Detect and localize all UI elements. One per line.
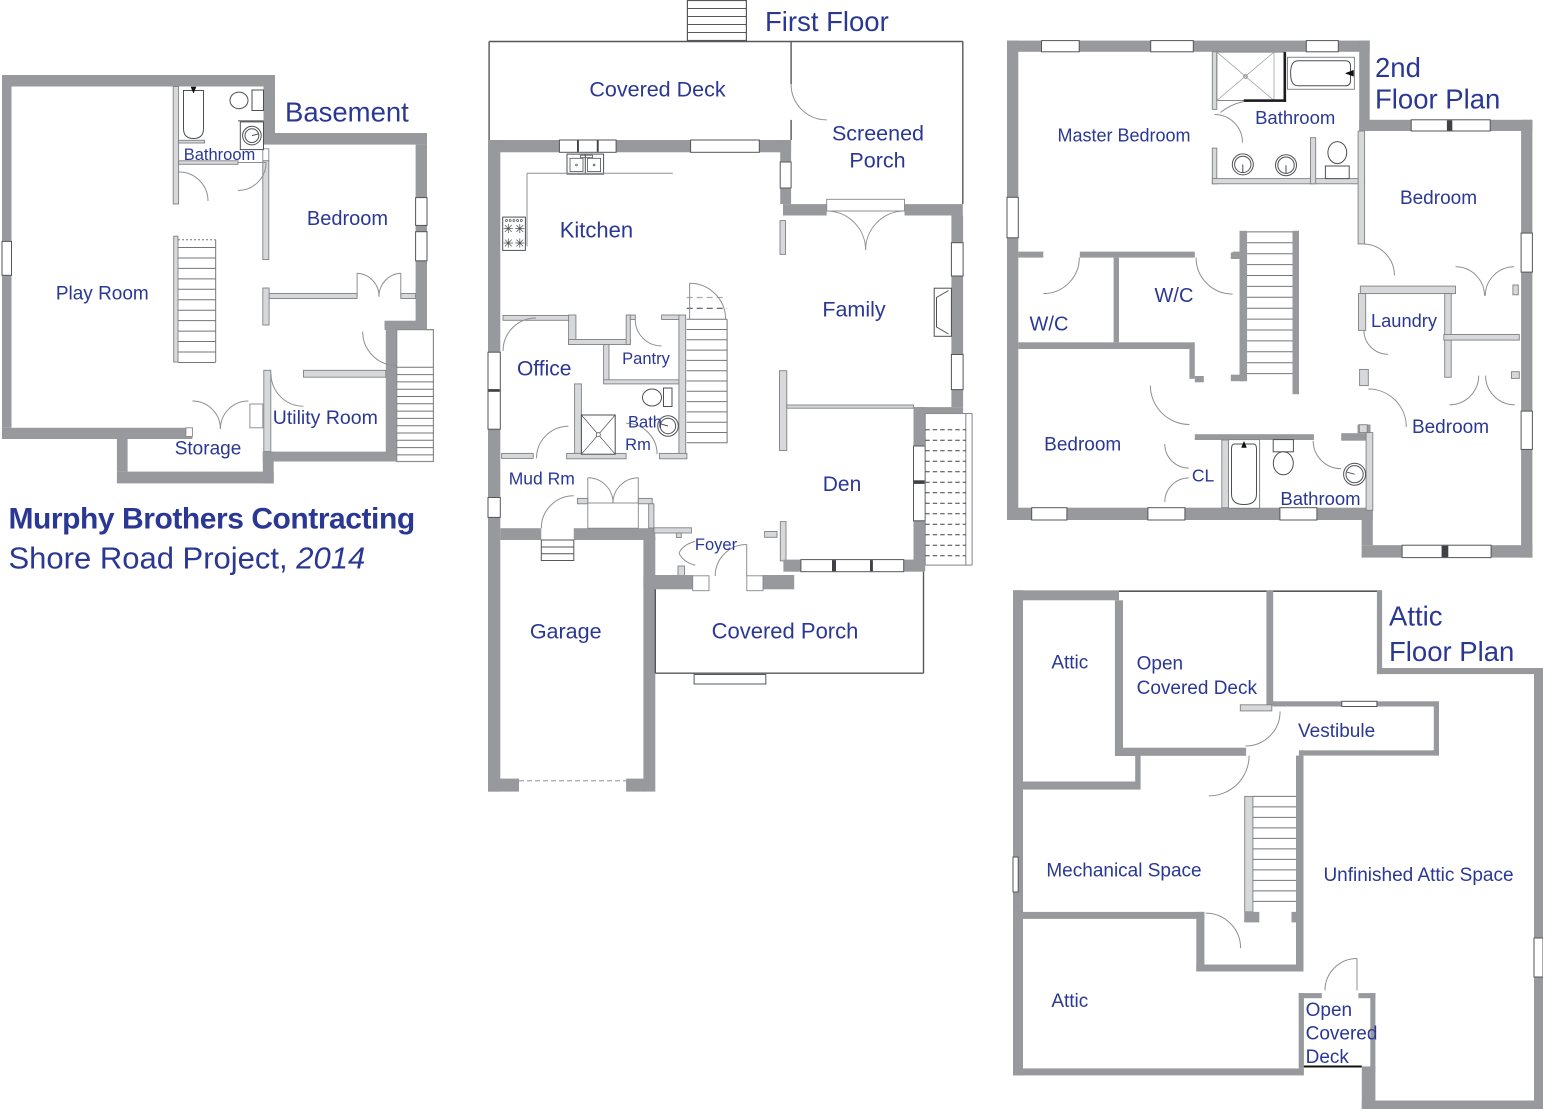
svg-text:Bathroom: Bathroom [184,146,256,164]
svg-text:Mud Rm: Mud Rm [509,469,575,489]
svg-text:Bathroom: Bathroom [1255,107,1335,128]
svg-text:Play Room: Play Room [56,283,149,304]
svg-text:Pantry: Pantry [622,350,670,368]
svg-text:Bedroom: Bedroom [307,208,388,230]
svg-text:Laundry: Laundry [1371,310,1438,331]
svg-text:Shore Road Project, 2014: Shore Road Project, 2014 [9,541,366,576]
svg-text:Attic: Attic [1051,653,1088,674]
svg-text:Bedroom: Bedroom [1400,188,1477,209]
svg-text:Basement: Basement [285,97,409,128]
svg-text:Covered Porch: Covered Porch [712,618,859,643]
svg-text:Bedroom: Bedroom [1412,417,1489,438]
svg-text:CL: CL [1192,466,1215,486]
svg-text:Storage: Storage [175,438,242,459]
svg-text:Bedroom: Bedroom [1044,435,1121,456]
svg-text:Unfinished Attic Space: Unfinished Attic Space [1323,865,1513,886]
svg-text:W/C: W/C [1155,285,1194,307]
svg-text:Murphy Brothers Contracting: Murphy Brothers Contracting [9,503,415,536]
svg-text:Utility Room: Utility Room [273,407,378,429]
svg-text:Covered Deck: Covered Deck [1137,678,1258,699]
svg-text:2nd: 2nd [1375,52,1421,83]
svg-text:Kitchen: Kitchen [560,217,633,242]
svg-text:Foyer: Foyer [695,536,738,554]
svg-text:Attic: Attic [1051,991,1088,1012]
svg-text:Porch: Porch [849,149,905,173]
svg-text:Screened: Screened [832,122,924,146]
svg-text:Bath: Bath [628,414,662,432]
svg-text:First Floor: First Floor [765,6,889,37]
svg-text:W/C: W/C [1030,314,1069,336]
svg-text:Office: Office [517,357,571,380]
svg-text:Bathroom: Bathroom [1280,488,1360,509]
svg-text:Floor Plan: Floor Plan [1389,636,1514,667]
svg-text:Master Bedroom: Master Bedroom [1057,126,1190,146]
svg-text:Covered: Covered [1306,1024,1378,1045]
svg-text:Den: Den [823,473,862,496]
svg-text:Family: Family [822,298,886,322]
svg-text:Vestibule: Vestibule [1298,721,1375,742]
svg-text:Mechanical Space: Mechanical Space [1046,861,1201,882]
svg-text:Deck: Deck [1306,1047,1350,1068]
svg-text:Open: Open [1306,1000,1352,1021]
svg-text:Attic: Attic [1389,601,1443,632]
svg-text:Covered Deck: Covered Deck [589,78,725,102]
svg-text:Garage: Garage [530,619,602,643]
svg-text:Floor Plan: Floor Plan [1375,84,1500,115]
svg-text:Rm: Rm [625,436,651,454]
svg-text:Open: Open [1137,654,1183,675]
